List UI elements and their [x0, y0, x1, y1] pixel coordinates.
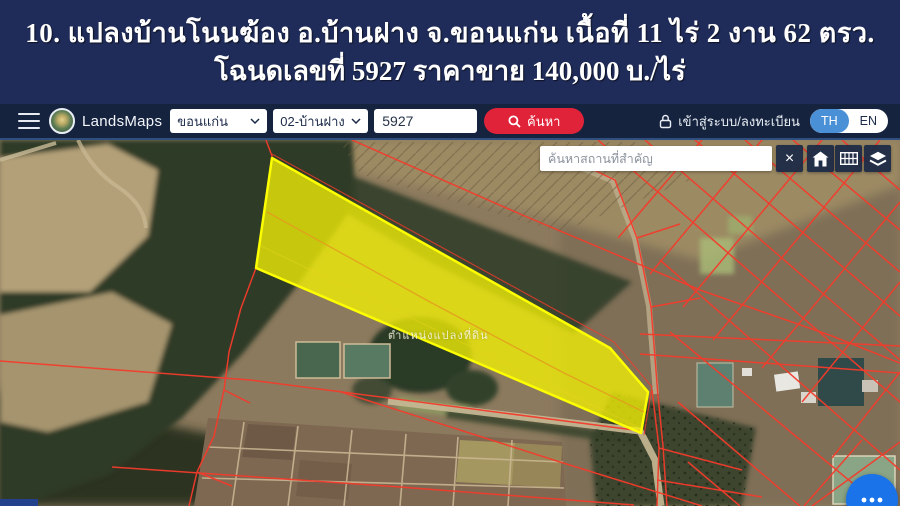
magnifier-icon	[508, 115, 521, 128]
map-search-input[interactable]	[540, 146, 772, 171]
listing-banner: 10. แปลงบ้านโนนฆ้อง อ.บ้านฝาง จ.ขอนแก่น …	[0, 0, 900, 104]
chevron-down-icon	[250, 118, 260, 124]
search-button[interactable]: ค้นหา	[484, 108, 584, 134]
map-layers-button[interactable]	[864, 145, 891, 172]
map-home-button[interactable]	[807, 145, 834, 172]
listing-title-line1: 10. แปลงบ้านโนนฆ้อง อ.บ้านฝาง จ.ขอนแก่น …	[0, 0, 900, 52]
login-register-link[interactable]: เข้าสู่ระบบ/ลงทะเบียน	[659, 111, 800, 132]
satellite-map-canvas[interactable]	[0, 140, 900, 506]
parcel-number-input[interactable]	[374, 109, 477, 133]
district-dropdown[interactable]: 02-บ้านฝาง	[273, 109, 368, 133]
landsmaps-logo	[49, 108, 75, 134]
listing-title-line2: โฉนดเลขที่ 5927 ราคาขาย 140,000 บ./ไร่	[0, 52, 900, 90]
login-register-label: เข้าสู่ระบบ/ลงทะเบียน	[678, 111, 800, 132]
close-icon: ×	[785, 151, 794, 167]
map-search-close-button[interactable]: ×	[776, 145, 803, 172]
layers-icon	[869, 151, 887, 167]
menu-hamburger-icon[interactable]	[18, 113, 40, 129]
province-dropdown[interactable]: ขอนแก่น	[170, 109, 267, 133]
map-container: × ตำแหน่งแปลงที่ดิน	[0, 140, 900, 506]
district-dropdown-value: 02-บ้านฝาง	[280, 111, 345, 132]
map-grid-button[interactable]	[835, 145, 862, 172]
lock-icon	[659, 114, 672, 129]
chevron-down-icon	[351, 118, 361, 124]
navbar-right: เข้าสู่ระบบ/ลงทะเบียน TH EN	[659, 109, 888, 133]
language-toggle: TH EN	[810, 109, 888, 133]
home-icon	[812, 151, 829, 167]
lang-en-button[interactable]: EN	[849, 109, 888, 133]
search-button-label: ค้นหา	[527, 111, 560, 132]
lang-th-button[interactable]: TH	[810, 109, 849, 133]
brand-title: LandsMaps	[82, 113, 162, 130]
province-dropdown-value: ขอนแก่น	[177, 111, 228, 132]
more-options-icon	[861, 497, 883, 503]
landsmaps-navbar: LandsMaps ขอนแก่น 02-บ้านฝาง ค้นหา เข้าส…	[0, 104, 900, 140]
grid-icon	[840, 152, 858, 165]
